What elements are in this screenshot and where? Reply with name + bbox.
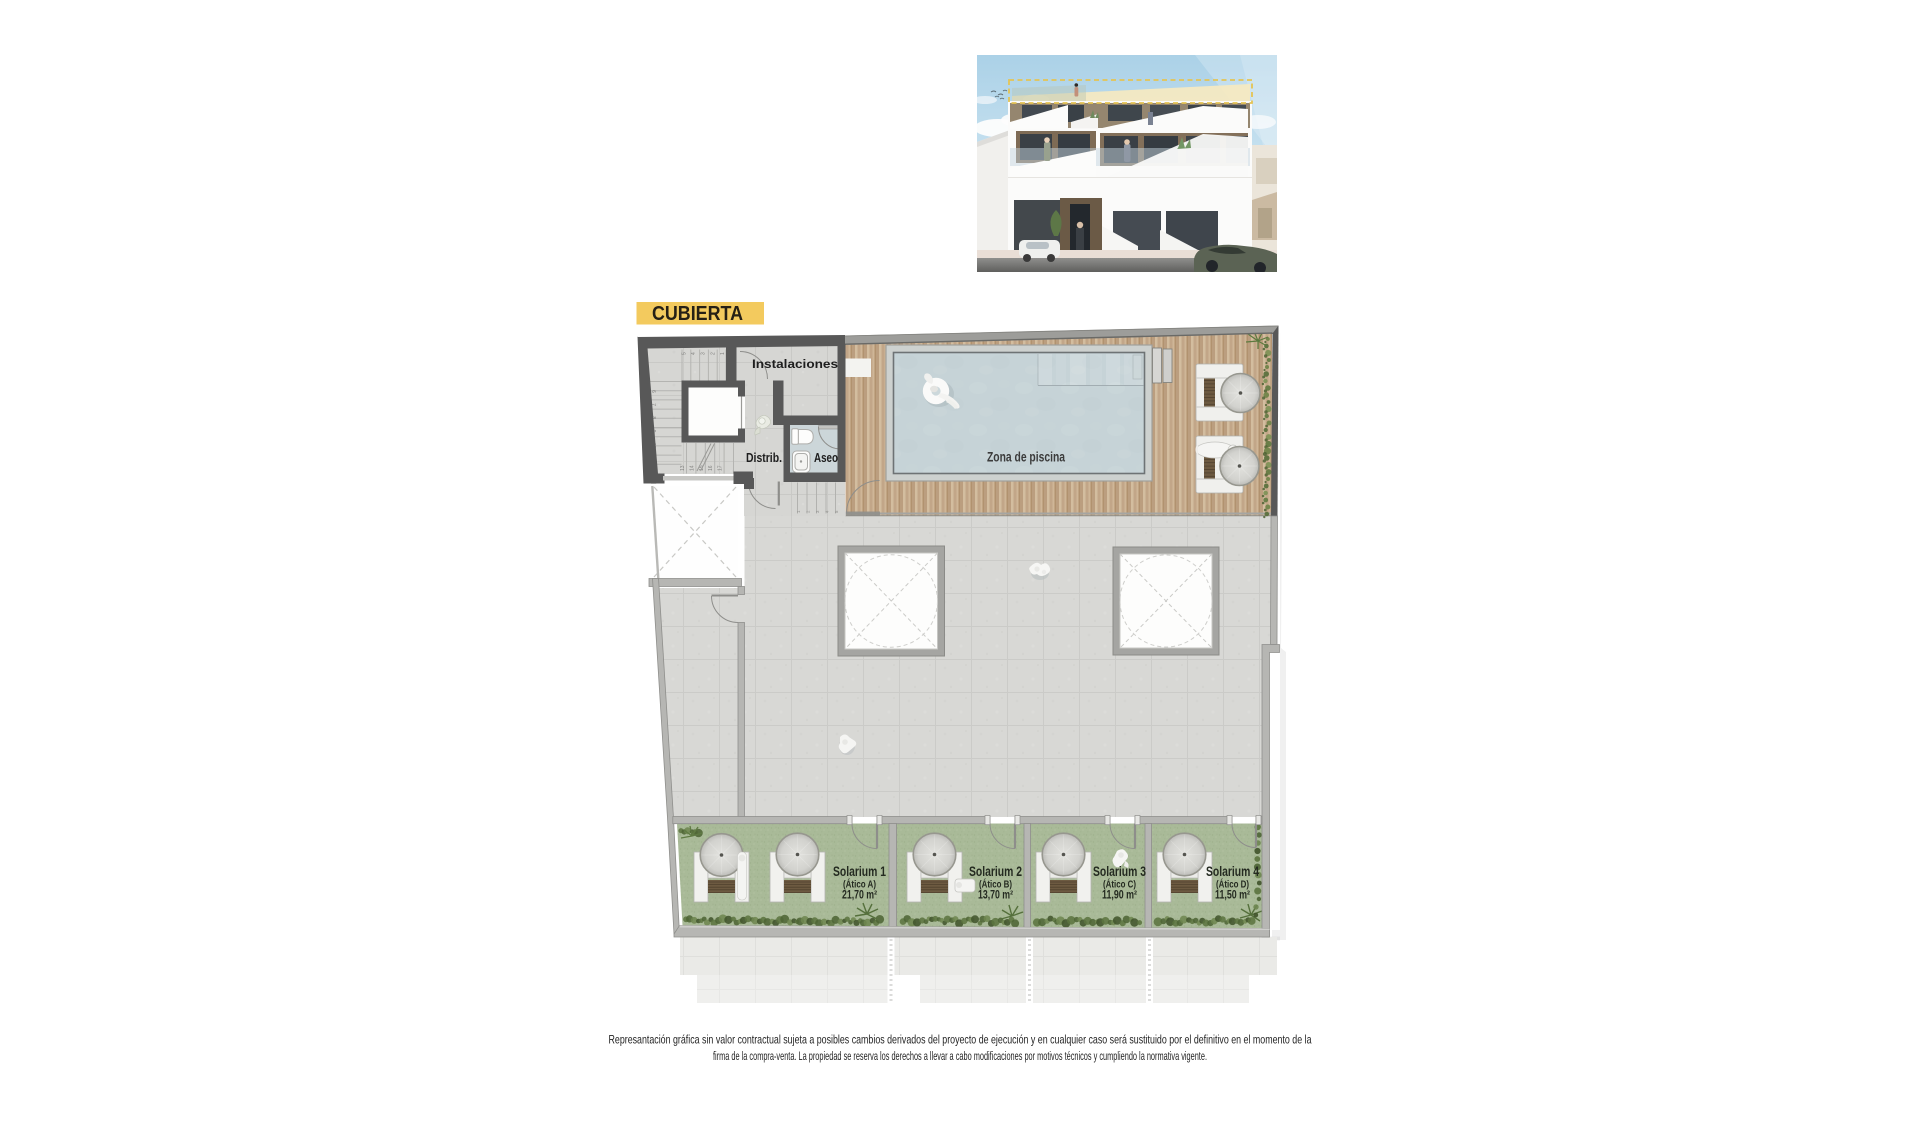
svg-text:4: 4 (691, 352, 697, 355)
svg-text:Zona de piscina: Zona de piscina (987, 450, 1065, 465)
svg-text:13,70 m²: 13,70 m² (978, 890, 1013, 902)
svg-text:11,50 m²: 11,50 m² (1215, 890, 1250, 902)
svg-text:CUBIERTA: CUBIERTA (652, 303, 743, 325)
svg-text:Solarium 1: Solarium 1 (833, 864, 886, 879)
svg-text:5: 5 (682, 352, 688, 355)
svg-text:17: 17 (718, 465, 724, 471)
svg-text:2: 2 (710, 352, 716, 355)
svg-text:14: 14 (689, 465, 695, 471)
svg-text:21,70 m²: 21,70 m² (842, 890, 877, 902)
svg-text:3: 3 (701, 352, 707, 355)
svg-text:13: 13 (680, 465, 686, 471)
svg-text:Instalaciones: Instalaciones (752, 357, 838, 371)
svg-text:16: 16 (708, 465, 714, 471)
svg-text:Represantación gráfica sin val: Represantación gráfica sin valor contrac… (609, 1033, 1312, 1047)
svg-text:Solarium 2: Solarium 2 (969, 864, 1022, 879)
svg-text:11,90 m²: 11,90 m² (1102, 890, 1137, 902)
svg-text:1: 1 (720, 352, 726, 355)
svg-text:Solarium 4: Solarium 4 (1206, 864, 1259, 879)
svg-text:Solarium 3: Solarium 3 (1093, 864, 1146, 879)
svg-text:Distrib.: Distrib. (746, 450, 782, 465)
svg-text:Aseo: Aseo (814, 450, 838, 465)
svg-text:firma de la compra-venta. La p: firma de la compra-venta. La propiedad s… (713, 1049, 1207, 1063)
